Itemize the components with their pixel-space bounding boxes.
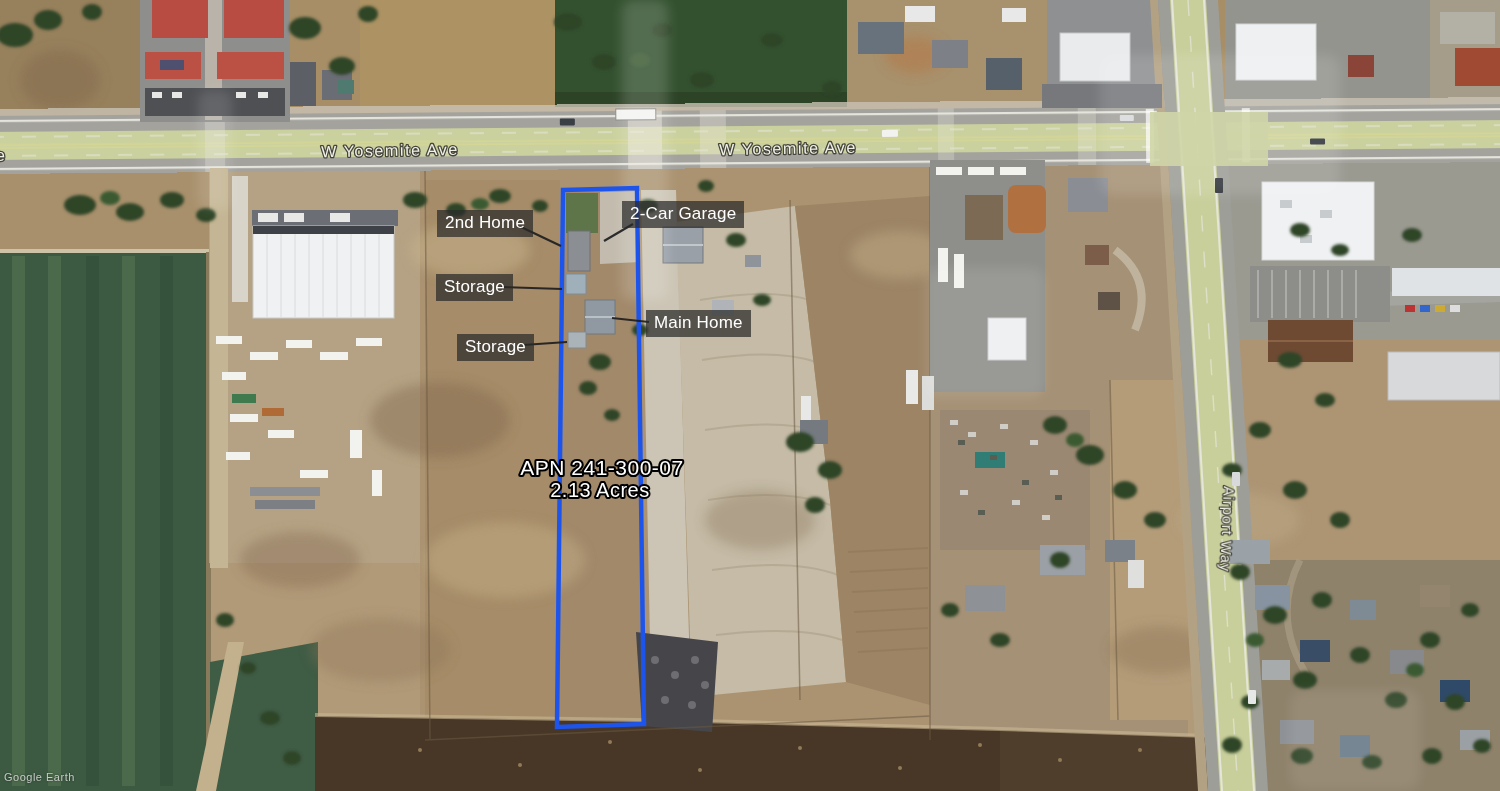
parcel-acreage-label: 2.13 Acres [550,479,650,501]
aerial-map: W Yosemite Ave W Yosemite Ave e Airport … [0,0,1500,791]
annotation-main-home: Main Home [646,310,751,337]
annotation-2-car-garage: 2-Car Garage [622,201,744,228]
street-label-yosemite-west: W Yosemite Ave [321,141,459,160]
annotation-2nd-home: 2nd Home [437,210,533,237]
annotation-storage-upper: Storage [436,274,513,301]
aerial-scene: W Yosemite Ave W Yosemite Ave e Airport … [0,0,1500,791]
street-label-yosemite-east: W Yosemite Ave [719,139,857,158]
parcel-apn-label: APN 241-300-07 [520,456,683,479]
google-earth-watermark: Google Earth [4,771,75,783]
annotation-storage-lower: Storage [457,334,534,361]
street-label-partial: e [0,147,7,164]
